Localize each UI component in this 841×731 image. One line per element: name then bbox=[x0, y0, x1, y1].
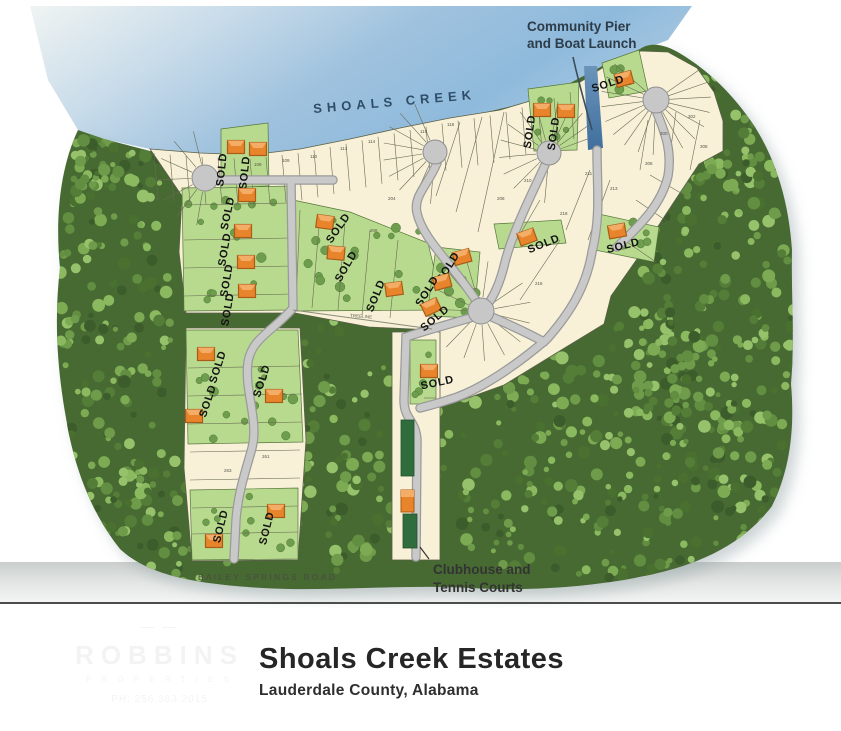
forest-tree bbox=[663, 294, 671, 302]
forest-tree bbox=[445, 430, 454, 439]
forest-tree bbox=[609, 344, 617, 352]
forest-tree bbox=[160, 286, 173, 299]
lot-number: 108 bbox=[254, 162, 262, 167]
forest-tree bbox=[691, 477, 700, 486]
forest-tree bbox=[696, 173, 705, 182]
forest-tree bbox=[602, 559, 610, 567]
forest-tree bbox=[93, 370, 105, 382]
forest-tree bbox=[331, 554, 343, 566]
forest-tree bbox=[468, 507, 474, 513]
forest-tree bbox=[606, 484, 612, 490]
forest-tree bbox=[136, 475, 144, 483]
lot-number: 206 bbox=[370, 228, 378, 233]
forest-tree bbox=[108, 183, 116, 191]
lot-number: 113 bbox=[340, 146, 348, 151]
forest-tree bbox=[367, 473, 376, 482]
forest-tree bbox=[652, 264, 662, 274]
forest-tree bbox=[113, 166, 125, 178]
forest-tree bbox=[788, 304, 800, 316]
lot-number: 119 bbox=[420, 129, 428, 134]
forest-tree bbox=[125, 500, 132, 507]
forest-tree bbox=[707, 479, 717, 489]
forest-tree bbox=[364, 412, 370, 418]
forest-tree bbox=[306, 359, 314, 367]
forest-tree bbox=[149, 422, 156, 429]
forest-tree bbox=[680, 540, 688, 548]
forest-tree bbox=[634, 349, 645, 360]
forest-tree bbox=[75, 179, 86, 190]
lot-number: 110 bbox=[310, 154, 318, 159]
forest-tree bbox=[148, 468, 160, 480]
lot-number: 210 bbox=[524, 178, 532, 183]
forest-tree bbox=[147, 255, 158, 266]
forest-tree bbox=[554, 415, 566, 427]
lot-number: 306 bbox=[645, 161, 653, 166]
forest-tree bbox=[336, 399, 346, 409]
forest-tree bbox=[504, 519, 513, 528]
forest-tree bbox=[92, 522, 98, 528]
forest-tree bbox=[667, 373, 677, 383]
clubhouse-annotation-line2: Tennis Courts bbox=[433, 580, 523, 595]
forest-tree bbox=[327, 462, 338, 473]
forest-tree bbox=[740, 100, 749, 109]
lot-tree bbox=[211, 508, 217, 514]
forest-tree bbox=[496, 420, 501, 425]
forest-tree bbox=[89, 181, 96, 188]
forest-tree bbox=[88, 313, 94, 319]
lot-tree bbox=[241, 418, 248, 425]
forest-tree bbox=[129, 215, 139, 225]
forest-tree bbox=[98, 164, 110, 176]
forest-tree bbox=[749, 220, 760, 231]
forest-tree bbox=[163, 273, 172, 282]
forest-tree bbox=[522, 469, 528, 475]
forest-tree bbox=[755, 152, 765, 162]
forest-tree bbox=[749, 315, 758, 324]
forest-tree bbox=[770, 342, 780, 352]
forest-tree bbox=[770, 487, 780, 497]
forest-tree bbox=[494, 394, 500, 400]
lot-tree bbox=[643, 238, 651, 246]
forest-tree bbox=[172, 542, 177, 547]
forest-tree bbox=[131, 412, 137, 418]
forest-tree bbox=[741, 420, 753, 432]
forest-tree bbox=[554, 482, 563, 491]
forest-tree bbox=[358, 419, 370, 431]
forest-tree bbox=[741, 147, 749, 155]
watermark: — — ROBBINS P R O P E R T I E S PH: 256.… bbox=[52, 618, 267, 705]
forest-tree bbox=[561, 439, 568, 446]
forest-tree bbox=[158, 511, 164, 517]
forest-tree bbox=[103, 295, 114, 306]
house-icon bbox=[250, 143, 267, 156]
forest-tree bbox=[765, 515, 774, 524]
lot-tree bbox=[412, 391, 419, 398]
cul-de-sac bbox=[192, 165, 218, 191]
forest-tree bbox=[137, 222, 143, 228]
forest-tree bbox=[762, 411, 771, 420]
forest-tree bbox=[681, 407, 692, 418]
forest-tree bbox=[138, 282, 149, 293]
forest-tree bbox=[614, 529, 621, 536]
forest-tree bbox=[706, 387, 715, 396]
forest-tree bbox=[631, 361, 641, 371]
forest-tree bbox=[675, 555, 685, 565]
forest-tree bbox=[682, 206, 691, 215]
lot-tree bbox=[395, 270, 403, 278]
forest-tree bbox=[124, 438, 135, 449]
forest-tree bbox=[713, 541, 718, 546]
forest-tree bbox=[752, 337, 759, 344]
forest-tree bbox=[643, 408, 649, 414]
forest-tree bbox=[551, 563, 560, 572]
forest-tree bbox=[723, 149, 730, 156]
forest-tree bbox=[665, 307, 675, 317]
forest-tree bbox=[788, 315, 794, 321]
forest-tree bbox=[664, 398, 673, 407]
forest-tree bbox=[56, 336, 66, 346]
forest-tree bbox=[147, 539, 159, 551]
forest-tree bbox=[570, 394, 580, 404]
forest-tree bbox=[720, 274, 730, 284]
forest-tree bbox=[54, 266, 67, 279]
forest-tree bbox=[773, 468, 782, 477]
forest-tree bbox=[735, 93, 743, 101]
pier-annotation-line2: and Boat Launch bbox=[527, 36, 637, 51]
forest-tree bbox=[717, 215, 726, 224]
forest-tree bbox=[501, 490, 511, 500]
forest-tree bbox=[118, 526, 128, 536]
forest-tree bbox=[468, 544, 475, 551]
forest-tree bbox=[498, 514, 504, 520]
forest-tree bbox=[576, 365, 587, 376]
forest-tree bbox=[531, 434, 539, 442]
forest-tree bbox=[776, 165, 782, 171]
forest-tree bbox=[779, 492, 784, 497]
forest-tree bbox=[643, 319, 653, 329]
forest-tree bbox=[491, 499, 500, 508]
lot-tree bbox=[312, 236, 321, 245]
forest-tree bbox=[381, 365, 386, 370]
forest-tree bbox=[600, 440, 610, 450]
forest-tree bbox=[730, 482, 740, 492]
forest-tree bbox=[654, 475, 662, 483]
forest-tree bbox=[118, 257, 131, 270]
forest-tree bbox=[152, 369, 161, 378]
forest-tree bbox=[625, 437, 632, 444]
forest-tree bbox=[762, 87, 771, 96]
forest-tree bbox=[572, 499, 578, 505]
forest-tree bbox=[317, 324, 325, 332]
forest-tree bbox=[703, 465, 709, 471]
forest-tree bbox=[373, 461, 385, 473]
forest-tree bbox=[329, 415, 337, 423]
forest-tree bbox=[758, 506, 766, 514]
forest-tree bbox=[681, 374, 691, 384]
forest-tree bbox=[440, 465, 447, 472]
forest-tree bbox=[145, 351, 152, 358]
forest-tree bbox=[150, 481, 157, 488]
forest-tree bbox=[662, 452, 670, 460]
forest-tree bbox=[691, 536, 702, 547]
lot-tree bbox=[643, 230, 649, 236]
lot-number: 109 bbox=[282, 158, 290, 163]
forest-tree bbox=[624, 408, 634, 418]
forest-tree bbox=[87, 282, 96, 291]
watermark-subtitle: P R O P E R T I E S bbox=[52, 675, 267, 684]
forest-tree bbox=[90, 519, 98, 527]
forest-tree bbox=[758, 517, 770, 529]
clubhouse-annotation-line1: Clubhouse and bbox=[433, 562, 531, 577]
forest-tree bbox=[541, 372, 549, 380]
forest-tree bbox=[769, 134, 779, 144]
forest-tree bbox=[114, 443, 121, 450]
forest-tree bbox=[737, 209, 742, 214]
lot-number: 208 bbox=[497, 196, 505, 201]
forest-tree bbox=[144, 488, 151, 495]
forest-tree bbox=[518, 544, 524, 550]
forest-tree bbox=[748, 88, 759, 99]
forest-tree bbox=[120, 238, 128, 246]
lot-tree bbox=[316, 276, 325, 285]
forest-tree bbox=[769, 94, 777, 102]
lot-tree bbox=[277, 544, 285, 552]
forest-tree bbox=[707, 349, 716, 358]
forest-tree bbox=[627, 448, 635, 456]
lot-number: 300 bbox=[660, 131, 668, 136]
forest-tree bbox=[318, 381, 330, 393]
house-icon bbox=[608, 223, 627, 239]
forest-tree bbox=[108, 142, 119, 153]
forest-tree bbox=[481, 523, 490, 532]
forest-tree bbox=[173, 531, 182, 540]
forest-tree bbox=[515, 476, 523, 484]
forest-tree bbox=[480, 454, 492, 466]
forest-tree bbox=[742, 399, 751, 408]
forest-tree bbox=[117, 286, 127, 296]
forest-tree bbox=[736, 534, 749, 547]
forest-tree bbox=[674, 266, 682, 274]
forest-tree bbox=[583, 514, 590, 521]
forest-tree bbox=[638, 501, 649, 512]
forest-tree bbox=[367, 371, 372, 376]
lot-tree bbox=[388, 233, 394, 239]
forest-tree bbox=[784, 340, 795, 351]
forest-tree bbox=[506, 532, 512, 538]
forest-tree bbox=[670, 364, 679, 373]
forest-tree bbox=[82, 380, 89, 387]
forest-tree bbox=[566, 452, 573, 459]
forest-tree bbox=[375, 451, 384, 460]
forest-tree bbox=[93, 417, 105, 429]
forest-tree bbox=[688, 331, 700, 343]
footer-divider-line bbox=[0, 602, 841, 604]
forest-tree bbox=[358, 437, 367, 446]
forest-tree bbox=[643, 527, 654, 538]
forest-tree bbox=[704, 402, 713, 411]
forest-tree bbox=[95, 335, 104, 344]
forest-tree bbox=[681, 227, 689, 235]
forest-tree bbox=[566, 426, 577, 437]
plat-map-page: SHOALS CREEK bbox=[0, 0, 841, 731]
title-block: — — ROBBINS P R O P E R T I E S PH: 256.… bbox=[0, 608, 841, 731]
forest-tree bbox=[142, 514, 153, 525]
forest-tree bbox=[138, 363, 148, 373]
forest-tree bbox=[64, 249, 71, 256]
road bbox=[291, 182, 293, 308]
forest-tree bbox=[118, 375, 131, 388]
cul-de-sac bbox=[643, 87, 669, 113]
forest-tree bbox=[735, 502, 747, 514]
forest-tree bbox=[94, 214, 107, 227]
forest-tree bbox=[649, 397, 658, 406]
forest-tree bbox=[777, 440, 787, 450]
lot-number: 216 bbox=[535, 281, 543, 286]
house-icon bbox=[235, 225, 252, 238]
forest-tree bbox=[493, 439, 502, 448]
forest-tree bbox=[134, 312, 144, 322]
forest-tree bbox=[133, 231, 141, 239]
forest-tree bbox=[580, 429, 586, 435]
forest-tree bbox=[612, 375, 622, 385]
lot-tree bbox=[288, 394, 298, 404]
forest-tree bbox=[547, 506, 557, 516]
forest-tree bbox=[334, 326, 344, 336]
forest-tree bbox=[762, 460, 772, 470]
lot-tree bbox=[287, 539, 295, 547]
forest-tree bbox=[731, 251, 740, 260]
forest-tree bbox=[783, 257, 791, 265]
forest-tree bbox=[59, 252, 64, 257]
forest-tree bbox=[65, 224, 75, 234]
forest-tree bbox=[496, 530, 504, 538]
forest-tree bbox=[672, 480, 679, 487]
forest-tree bbox=[590, 430, 602, 442]
forest-tree bbox=[668, 320, 674, 326]
watermark-phone: PH: 256.383.2015 bbox=[52, 694, 267, 705]
forest-tree bbox=[713, 515, 718, 520]
forest-tree bbox=[86, 191, 95, 200]
forest-tree bbox=[731, 401, 737, 407]
forest-tree bbox=[89, 219, 95, 225]
forest-tree bbox=[757, 385, 767, 395]
forest-tree bbox=[95, 551, 107, 563]
forest-tree bbox=[615, 322, 624, 331]
cul-de-sac bbox=[468, 298, 494, 324]
forest-tree bbox=[456, 517, 469, 530]
forest-tree bbox=[723, 160, 732, 169]
forest-tree bbox=[143, 243, 151, 251]
forest-tree bbox=[672, 409, 679, 416]
forest-tree bbox=[610, 386, 618, 394]
forest-tree bbox=[137, 543, 144, 550]
lot-tree bbox=[198, 219, 204, 225]
forest-tree bbox=[360, 390, 368, 398]
forest-tree bbox=[106, 522, 116, 532]
forest-tree bbox=[507, 540, 513, 546]
forest-tree bbox=[718, 485, 731, 498]
forest-tree bbox=[707, 164, 717, 174]
forest-tree bbox=[777, 97, 790, 110]
lot-tree bbox=[547, 98, 553, 104]
lot-number: 114 bbox=[368, 139, 376, 144]
forest-tree bbox=[77, 134, 90, 147]
lot-tree bbox=[270, 199, 277, 206]
forest-tree bbox=[657, 464, 662, 469]
forest-tree bbox=[771, 288, 781, 298]
house-icon bbox=[239, 189, 256, 202]
forest-tree bbox=[578, 446, 591, 459]
forest-tree bbox=[178, 546, 188, 556]
forest-tree bbox=[660, 259, 666, 265]
house-icon bbox=[421, 365, 438, 378]
forest-tree bbox=[483, 508, 489, 514]
forest-tree bbox=[111, 555, 117, 561]
forest-tree bbox=[100, 142, 105, 147]
forest-tree bbox=[362, 452, 373, 463]
forest-tree bbox=[778, 108, 787, 117]
forest-tree bbox=[310, 406, 316, 412]
forest-tree bbox=[360, 543, 373, 556]
forest-tree bbox=[672, 508, 683, 519]
forest-tree bbox=[111, 213, 118, 220]
forest-tree bbox=[541, 499, 547, 505]
forest-tree bbox=[576, 571, 582, 577]
forest-tree bbox=[753, 171, 764, 182]
forest-tree bbox=[63, 212, 75, 224]
forest-tree bbox=[545, 477, 554, 486]
tennis-court bbox=[403, 514, 417, 548]
forest-tree bbox=[796, 323, 804, 331]
lot-number: 211 bbox=[585, 171, 593, 176]
forest-tree bbox=[336, 456, 343, 463]
forest-tree bbox=[683, 439, 688, 444]
forest-tree bbox=[127, 332, 137, 342]
forest-tree bbox=[506, 400, 514, 408]
forest-tree bbox=[340, 471, 351, 482]
forest-tree bbox=[524, 490, 532, 498]
forest-tree bbox=[605, 500, 611, 506]
forest-tree bbox=[172, 495, 183, 506]
lot-tree bbox=[538, 97, 545, 104]
page-subtitle: Lauderdale County, Alabama bbox=[259, 682, 564, 700]
forest-tree bbox=[376, 496, 383, 503]
forest-tree bbox=[582, 565, 591, 574]
forest-tree bbox=[742, 159, 749, 166]
forest-tree bbox=[119, 477, 128, 486]
forest-tree bbox=[655, 339, 662, 346]
forest-tree bbox=[546, 430, 552, 436]
forest-tree bbox=[777, 249, 786, 258]
lot-tree bbox=[223, 411, 230, 418]
forest-tree bbox=[502, 451, 508, 457]
forest-tree bbox=[748, 197, 761, 210]
forest-tree bbox=[750, 120, 758, 128]
forest-tree bbox=[75, 156, 86, 167]
forest-tree bbox=[330, 518, 338, 526]
forest-tree bbox=[313, 395, 325, 407]
forest-tree bbox=[548, 457, 555, 464]
forest-tree bbox=[642, 272, 655, 285]
forest-tree bbox=[161, 345, 166, 350]
lot-tree bbox=[211, 203, 218, 210]
forest-tree bbox=[790, 218, 799, 227]
forest-tree bbox=[591, 468, 603, 480]
forest-tree bbox=[740, 524, 747, 531]
forest-tree bbox=[376, 431, 383, 438]
forest-tree bbox=[75, 389, 81, 395]
forest-tree bbox=[157, 180, 162, 185]
